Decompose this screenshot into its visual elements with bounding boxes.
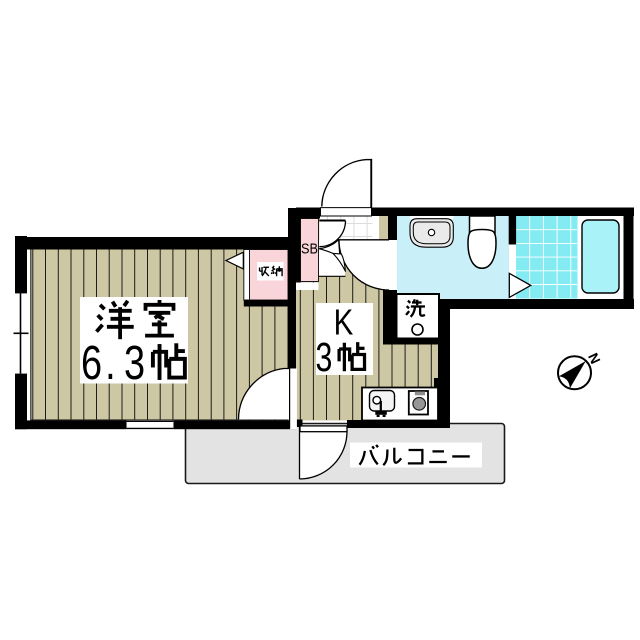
svg-text:K: K — [334, 302, 354, 342]
svg-text:3: 3 — [124, 337, 145, 390]
svg-text:6: 6 — [81, 337, 102, 390]
svg-text:SB: SB — [301, 239, 318, 256]
svg-text:3: 3 — [316, 333, 333, 380]
svg-text:.: . — [105, 337, 116, 390]
